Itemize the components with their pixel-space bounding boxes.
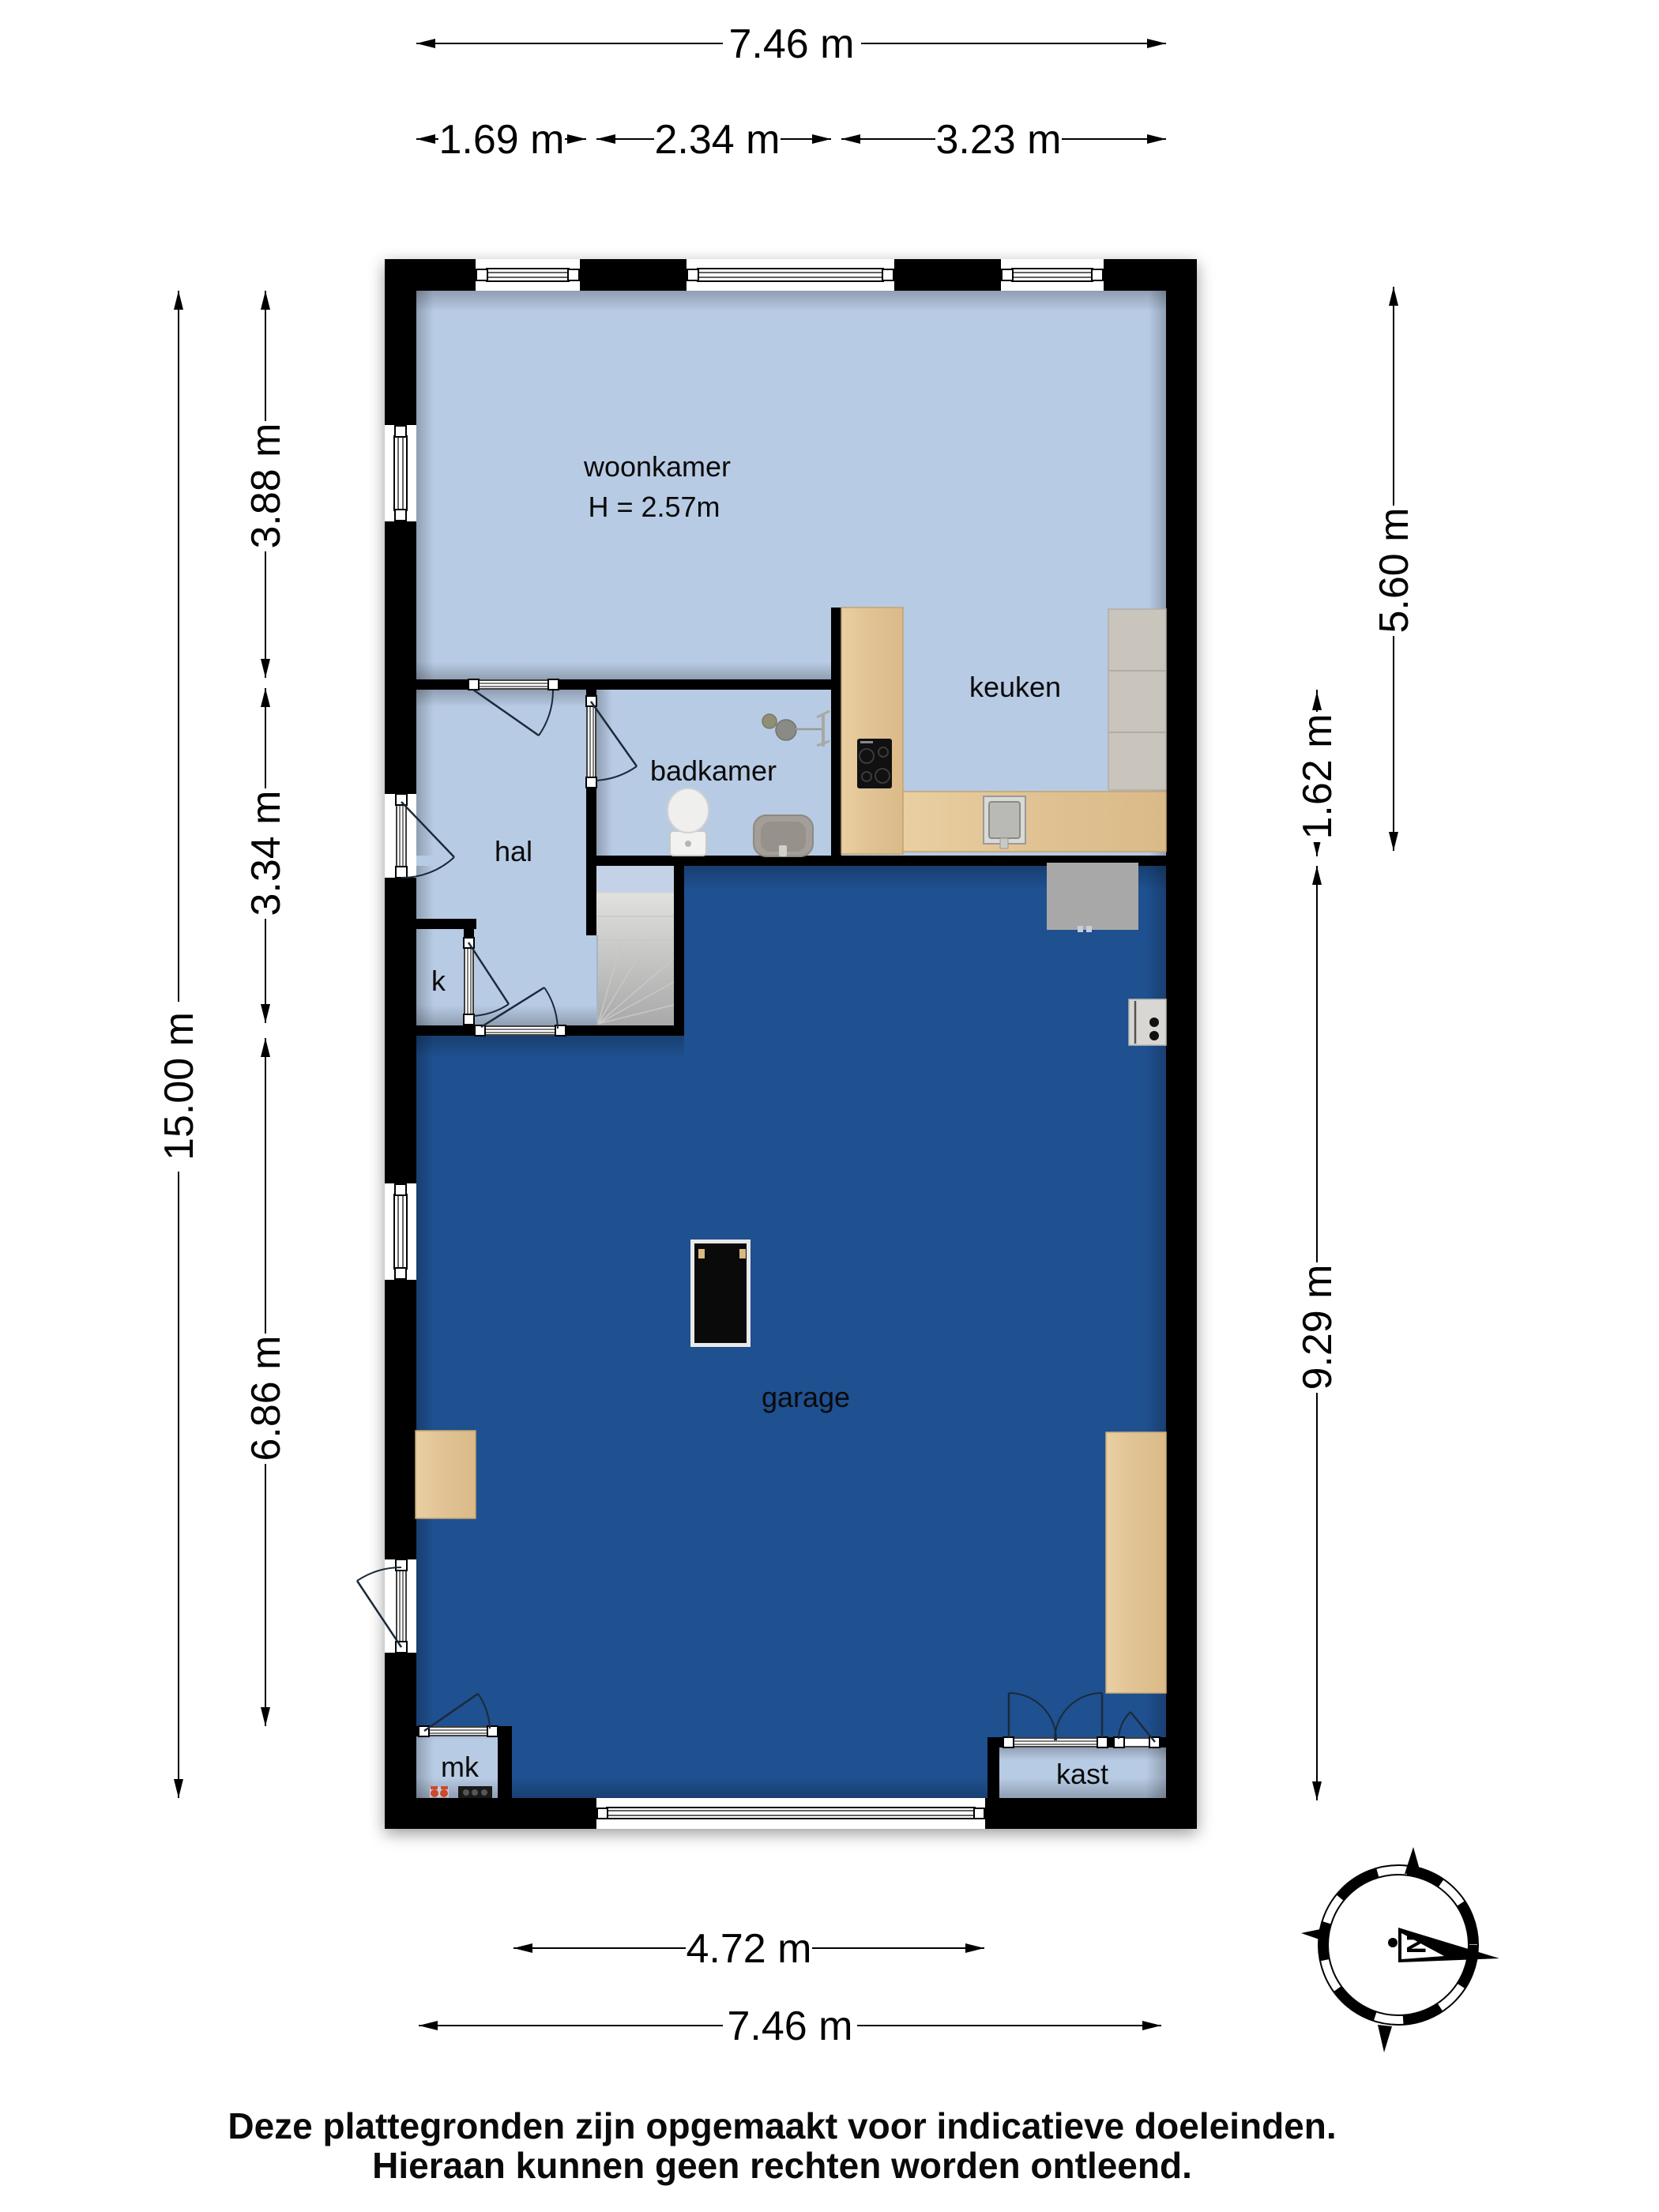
svg-text:garage: garage bbox=[762, 1381, 850, 1413]
svg-text:9.29 m: 9.29 m bbox=[1295, 1265, 1341, 1390]
svg-text:1.69 m: 1.69 m bbox=[439, 117, 565, 163]
svg-text:badkamer: badkamer bbox=[650, 754, 777, 787]
svg-text:keuken: keuken bbox=[969, 671, 1061, 703]
svg-text:3.34 m: 3.34 m bbox=[243, 791, 289, 916]
svg-text:1.62 m: 1.62 m bbox=[1295, 714, 1341, 840]
svg-text:5.60 m: 5.60 m bbox=[1371, 508, 1417, 634]
svg-text:Deze plattegronden zijn opgema: Deze plattegronden zijn opgemaakt voor i… bbox=[228, 2105, 1336, 2146]
svg-text:7.46 m: 7.46 m bbox=[728, 2003, 853, 2049]
svg-text:6.86 m: 6.86 m bbox=[243, 1336, 289, 1461]
svg-text:3.23 m: 3.23 m bbox=[936, 117, 1062, 163]
svg-text:2.34 m: 2.34 m bbox=[655, 117, 781, 163]
svg-text:7.46 m: 7.46 m bbox=[729, 21, 855, 67]
svg-text:3.88 m: 3.88 m bbox=[243, 423, 289, 549]
svg-text:Hieraan kunnen geen rechten wo: Hieraan kunnen geen rechten worden ontle… bbox=[372, 2145, 1192, 2186]
svg-text:H = 2.57m: H = 2.57m bbox=[588, 491, 720, 523]
svg-text:k: k bbox=[431, 965, 446, 997]
svg-text:N: N bbox=[1401, 1935, 1431, 1954]
svg-text:4.72 m: 4.72 m bbox=[687, 1926, 812, 1972]
svg-text:15.00 m: 15.00 m bbox=[156, 1012, 202, 1161]
svg-text:kast: kast bbox=[1056, 1758, 1108, 1790]
svg-text:hal: hal bbox=[495, 835, 532, 867]
svg-text:woonkamer: woonkamer bbox=[583, 450, 731, 483]
svg-text:mk: mk bbox=[441, 1751, 480, 1783]
